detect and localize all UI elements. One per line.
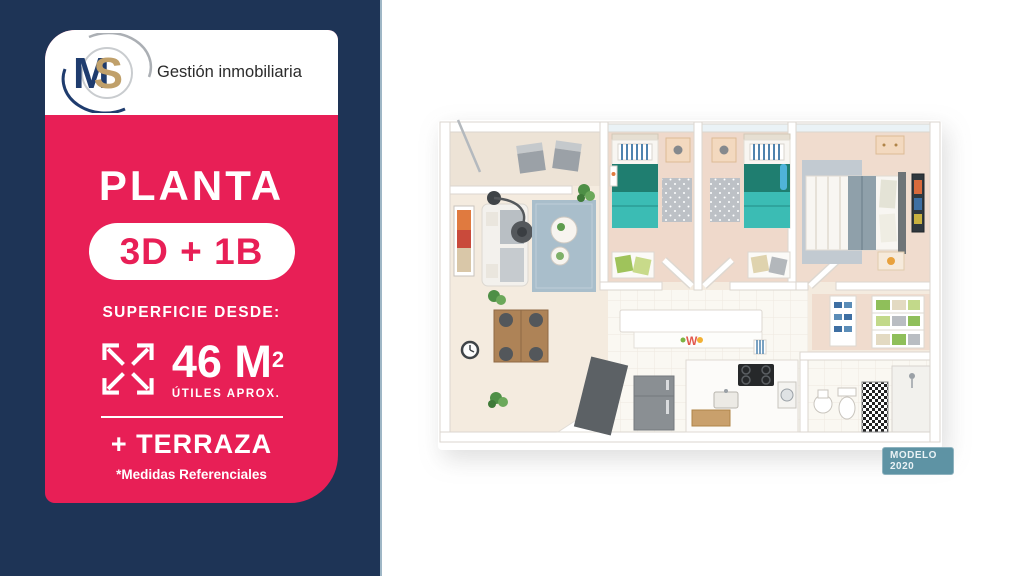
divider-line [101,416,283,418]
surface-label: SUPERFICIE DESDE: [103,304,281,322]
type-badge: 3D + 1B [89,223,295,280]
poster: MS Gestión inmobiliaria PLANTA 3D + 1B S… [0,0,1024,576]
brand-text: Gestión inmobiliaria [157,63,302,82]
area-row: 46 M2 ÚTILES APROX. [99,337,284,401]
card-title: PLANTA [99,165,284,207]
area-value: 46 M2 [172,339,284,384]
card-header: MS Gestión inmobiliaria [45,30,338,115]
type-badge-label: 3D + 1B [120,231,264,273]
left-panel: MS Gestión inmobiliaria PLANTA 3D + 1B S… [0,0,382,576]
area-number: 46 M [172,336,272,387]
svg-text:W: W [686,334,698,348]
disclaimer: *Medidas Referenciales [116,467,267,482]
info-card: MS Gestión inmobiliaria PLANTA 3D + 1B S… [45,30,338,503]
extra-feature: + TERRAZA [111,429,272,460]
floor-plan-drawing: W [434,114,946,462]
logo-letter-s: S [94,49,123,98]
area-superscript: 2 [272,347,284,372]
closet [830,296,924,348]
ms-logo: MS [59,33,155,113]
expand-arrows-icon [99,337,157,401]
area-col: 46 M2 ÚTILES APROX. [172,339,284,400]
area-note: ÚTILES APROX. [172,388,284,400]
model-badge: MODELO 2020 [882,447,954,475]
logo-monogram: MS [73,49,123,99]
card-body: PLANTA 3D + 1B SUPERFICIE DESDE: [45,115,338,503]
floor-plan: W [434,114,954,470]
